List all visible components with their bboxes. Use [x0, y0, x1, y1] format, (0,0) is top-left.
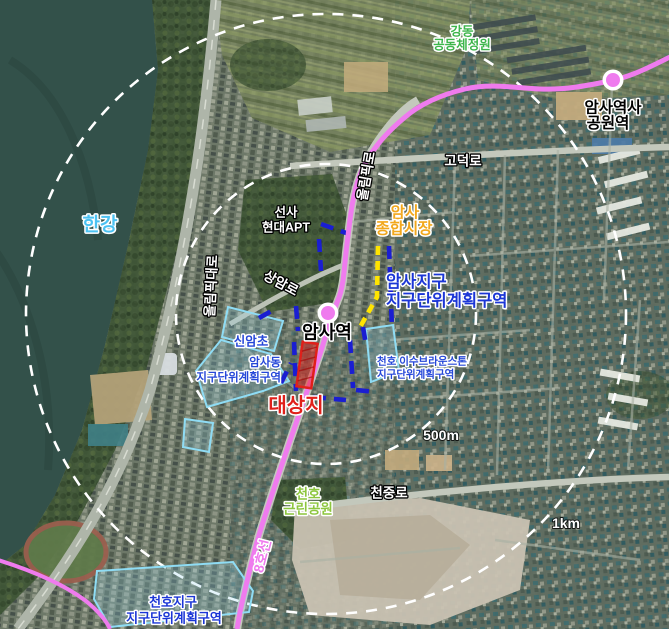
label-amsa-market-2: 종합시장 [375, 219, 433, 237]
label-cheonho-isu: 천호 이수브라운스톤 [377, 355, 467, 368]
label-sinam-elementary: 신암초 [234, 333, 269, 348]
label-cheonjung-ro: 천중로 [370, 486, 408, 501]
label-seonsa-apt: 선사 [274, 204, 298, 219]
label-amsa-market: 암사 [391, 202, 420, 221]
label-cheonho-district-2: 지구단위계획구역 [126, 611, 222, 626]
map-canvas: 강동 공동체정원 암사역사 공원역 고덕로 한강 올림픽로 올림픽대로 선사 현… [0, 0, 669, 629]
label-radius-500m: 500m [423, 427, 459, 443]
label-amsa-station: 암사역 [302, 322, 352, 342]
amsadong-district-polygon-south [183, 419, 213, 452]
label-hangang: 한강 [83, 214, 118, 236]
label-amsa-history-station: 암사역사 [584, 97, 642, 116]
label-amsadong-district-2: 지구단위계획구역 [196, 370, 281, 384]
label-cheonho-isu-2: 지구단위계획구역 [377, 368, 454, 381]
label-cheonho-park-2: 근린공원 [283, 501, 333, 517]
label-amsa-history-station-2: 공원역 [587, 114, 630, 132]
label-amsadong-district: 암사동 [249, 355, 281, 369]
label-cheonho-district: 천호지구 [149, 595, 197, 610]
label-seonsa-apt-2: 현대APT [262, 219, 310, 234]
satellite-map: 강동 공동체정원 암사역사 공원역 고덕로 한강 올림픽로 올림픽대로 선사 현… [0, 0, 669, 629]
label-cheonho-park: 천호 [296, 487, 321, 502]
label-amsa-district-2: 지구단위계획구역 [386, 291, 507, 310]
label-radius-1km: 1km [552, 515, 580, 531]
label-target-site: 대상지 [268, 394, 323, 417]
label-gangdong-garden: 강동 [450, 23, 474, 38]
label-olympic-daero: 올림픽대로 [201, 254, 220, 317]
label-godeok-ro: 고덕로 [444, 153, 482, 169]
label-gangdong-garden-2: 공동체정원 [433, 37, 491, 52]
label-amsa-district: 암사지구 [386, 272, 447, 291]
